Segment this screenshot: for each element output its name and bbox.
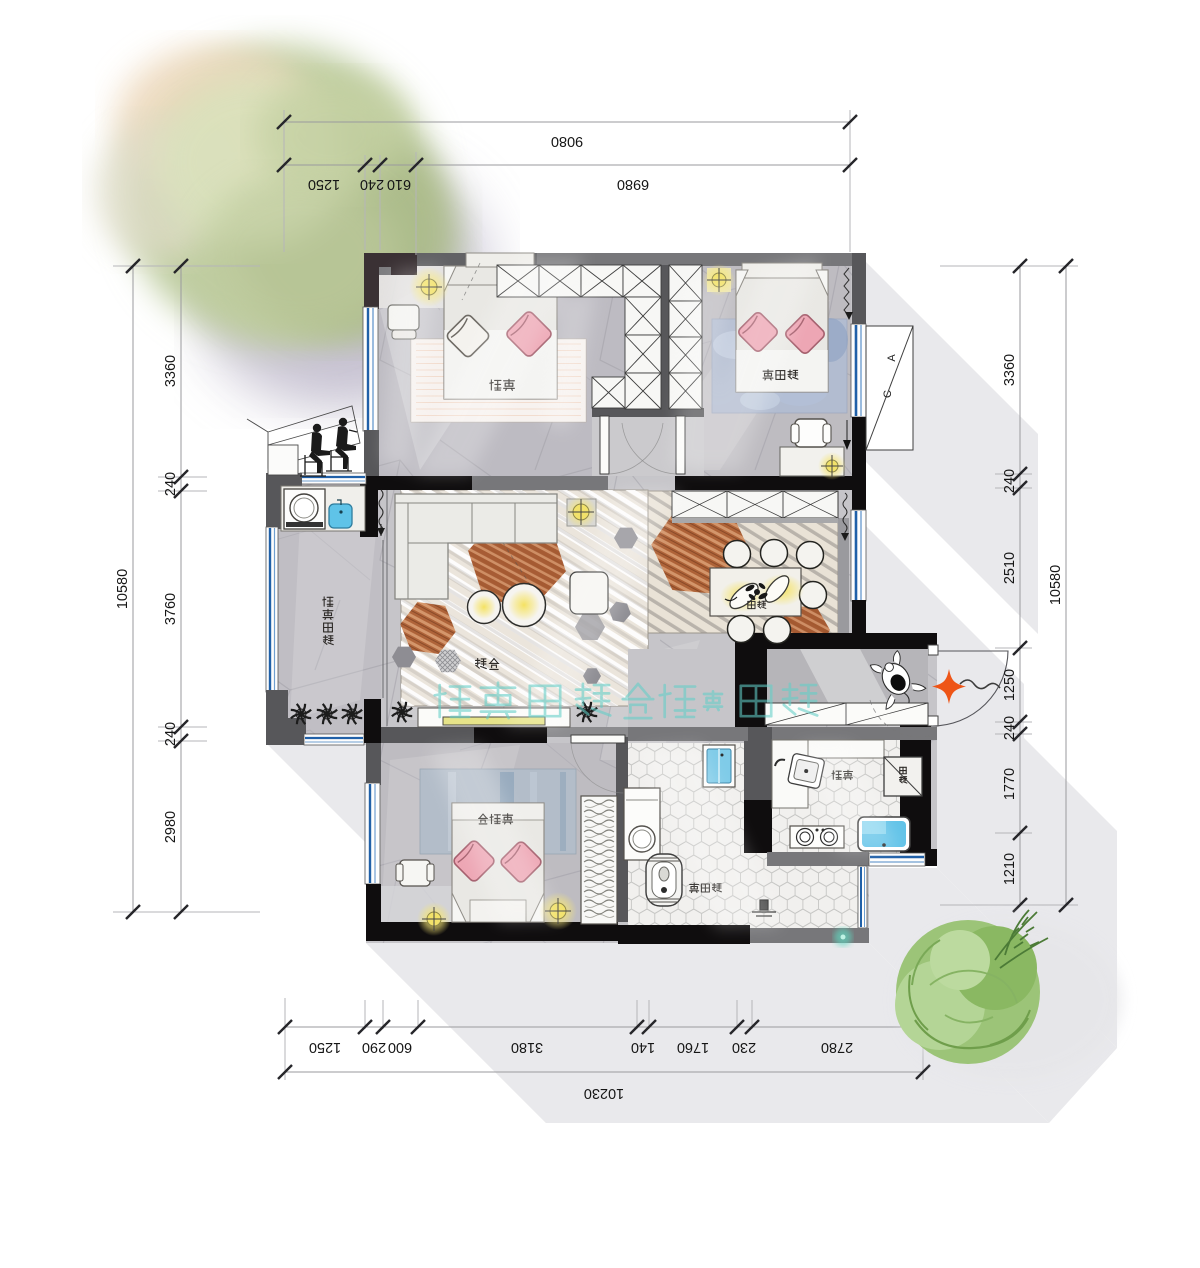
svg-text:600: 600 <box>388 1039 412 1055</box>
svg-text:3180: 3180 <box>511 1039 543 1055</box>
svg-text:1760: 1760 <box>677 1039 709 1055</box>
svg-text:2780: 2780 <box>821 1039 853 1055</box>
svg-text:610: 610 <box>387 176 411 192</box>
svg-text:2510: 2510 <box>1002 552 1018 584</box>
svg-text:2980: 2980 <box>163 811 179 843</box>
svg-text:290: 290 <box>362 1039 386 1055</box>
svg-text:240: 240 <box>360 176 384 192</box>
svg-text:C: C <box>882 390 894 398</box>
svg-text:10580: 10580 <box>1048 565 1064 605</box>
svg-text:1250: 1250 <box>1002 669 1018 701</box>
svg-text:1210: 1210 <box>1002 853 1018 885</box>
svg-text:3760: 3760 <box>163 593 179 625</box>
svg-text:6980: 6980 <box>617 176 649 192</box>
svg-text:9080: 9080 <box>551 133 583 149</box>
svg-text:240: 240 <box>163 722 179 746</box>
svg-text:A: A <box>886 354 898 362</box>
svg-text:1770: 1770 <box>1002 768 1018 800</box>
svg-text:3360: 3360 <box>1002 354 1018 386</box>
svg-text:140: 140 <box>631 1039 655 1055</box>
svg-text:3360: 3360 <box>163 355 179 387</box>
svg-text:240: 240 <box>1002 469 1018 493</box>
svg-text:1250: 1250 <box>308 176 340 192</box>
svg-text:10230: 10230 <box>584 1085 624 1101</box>
svg-text:1250: 1250 <box>309 1039 341 1055</box>
svg-text:230: 230 <box>732 1039 756 1055</box>
svg-text:240: 240 <box>163 472 179 496</box>
svg-text:240: 240 <box>1002 716 1018 740</box>
svg-text:10580: 10580 <box>115 569 131 609</box>
